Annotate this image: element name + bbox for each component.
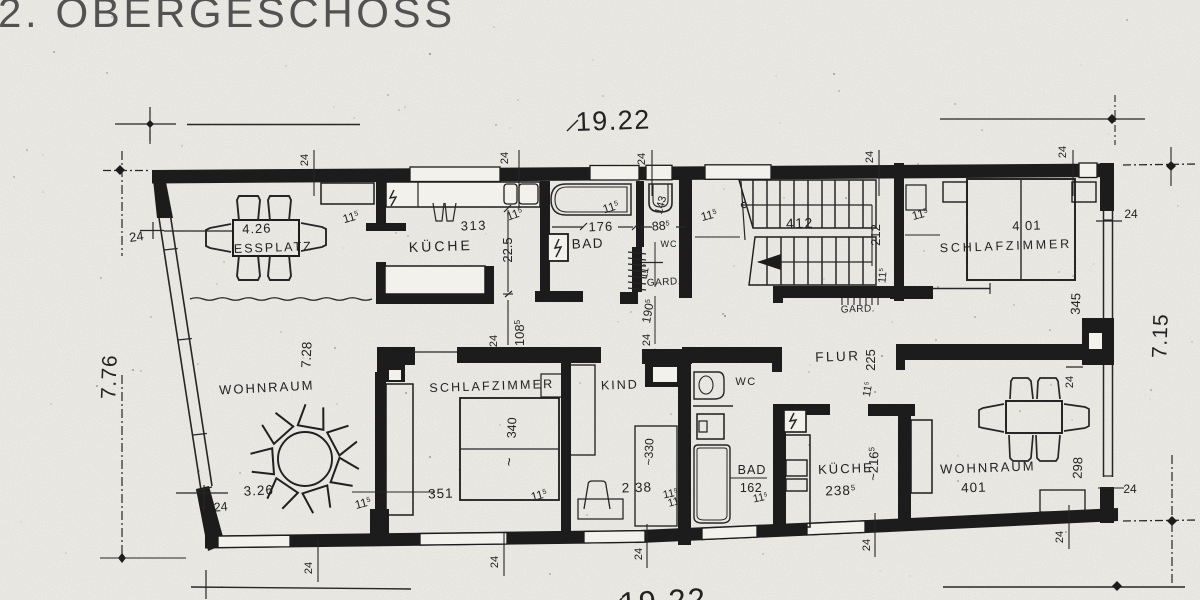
svg-text:24: 24: [1064, 376, 1076, 388]
svg-text:WC: WC: [661, 239, 678, 249]
svg-text:7.15: 7.15: [1148, 313, 1173, 359]
svg-text:7.76: 7.76: [97, 354, 122, 400]
svg-text:24: 24: [641, 334, 653, 346]
svg-text:~: ~: [501, 457, 518, 467]
svg-text:401: 401: [961, 480, 987, 496]
svg-text:24: 24: [1123, 482, 1137, 496]
svg-text:24: 24: [1057, 146, 1069, 158]
svg-text:24: 24: [633, 548, 645, 560]
svg-text:2 38: 2 38: [621, 479, 652, 495]
svg-text:340: 340: [505, 417, 520, 438]
svg-text:298: 298: [1070, 457, 1086, 479]
svg-text:24: 24: [864, 151, 876, 163]
svg-text:24: 24: [213, 499, 228, 514]
svg-text:24: 24: [636, 153, 648, 165]
svg-text:BAD: BAD: [571, 235, 604, 251]
svg-text:24: 24: [861, 539, 873, 551]
svg-text:GARD.: GARD.: [841, 303, 876, 315]
svg-text:24: 24: [489, 556, 501, 568]
svg-text:WC: WC: [735, 376, 756, 388]
svg-text:345: 345: [1068, 293, 1084, 315]
svg-text:24: 24: [128, 228, 144, 245]
svg-text:GARD.: GARD.: [647, 276, 682, 289]
svg-text:225: 225: [863, 349, 878, 371]
svg-text:KIND: KIND: [601, 377, 639, 392]
svg-text:313: 313: [460, 218, 487, 234]
svg-text:4 01: 4 01: [1012, 217, 1042, 233]
svg-text:2. OBERGESCHOSS: 2. OBERGESCHOSS: [0, 0, 456, 36]
svg-text:19.22: 19.22: [575, 104, 651, 137]
svg-text:412: 412: [786, 215, 814, 232]
svg-text:~330: ~330: [642, 438, 657, 466]
svg-text:212: 212: [868, 224, 883, 246]
svg-text:3.26: 3.26: [243, 482, 274, 499]
svg-text:24: 24: [299, 154, 311, 166]
svg-text:24: 24: [303, 562, 315, 574]
svg-text:176: 176: [588, 219, 613, 235]
svg-text:FLUR: FLUR: [815, 348, 861, 365]
svg-text:24: 24: [1124, 207, 1138, 221]
svg-text:BAD: BAD: [738, 463, 767, 477]
svg-text:24: 24: [488, 335, 500, 347]
svg-text:KÜCHE: KÜCHE: [409, 236, 474, 255]
svg-text:24: 24: [1054, 531, 1066, 543]
svg-text:ESSPLATZ: ESSPLATZ: [234, 239, 313, 256]
svg-text:4.26: 4.26: [242, 220, 272, 236]
svg-text:24: 24: [499, 152, 511, 164]
svg-text:351: 351: [428, 486, 454, 502]
svg-text:7.28: 7.28: [299, 341, 315, 368]
